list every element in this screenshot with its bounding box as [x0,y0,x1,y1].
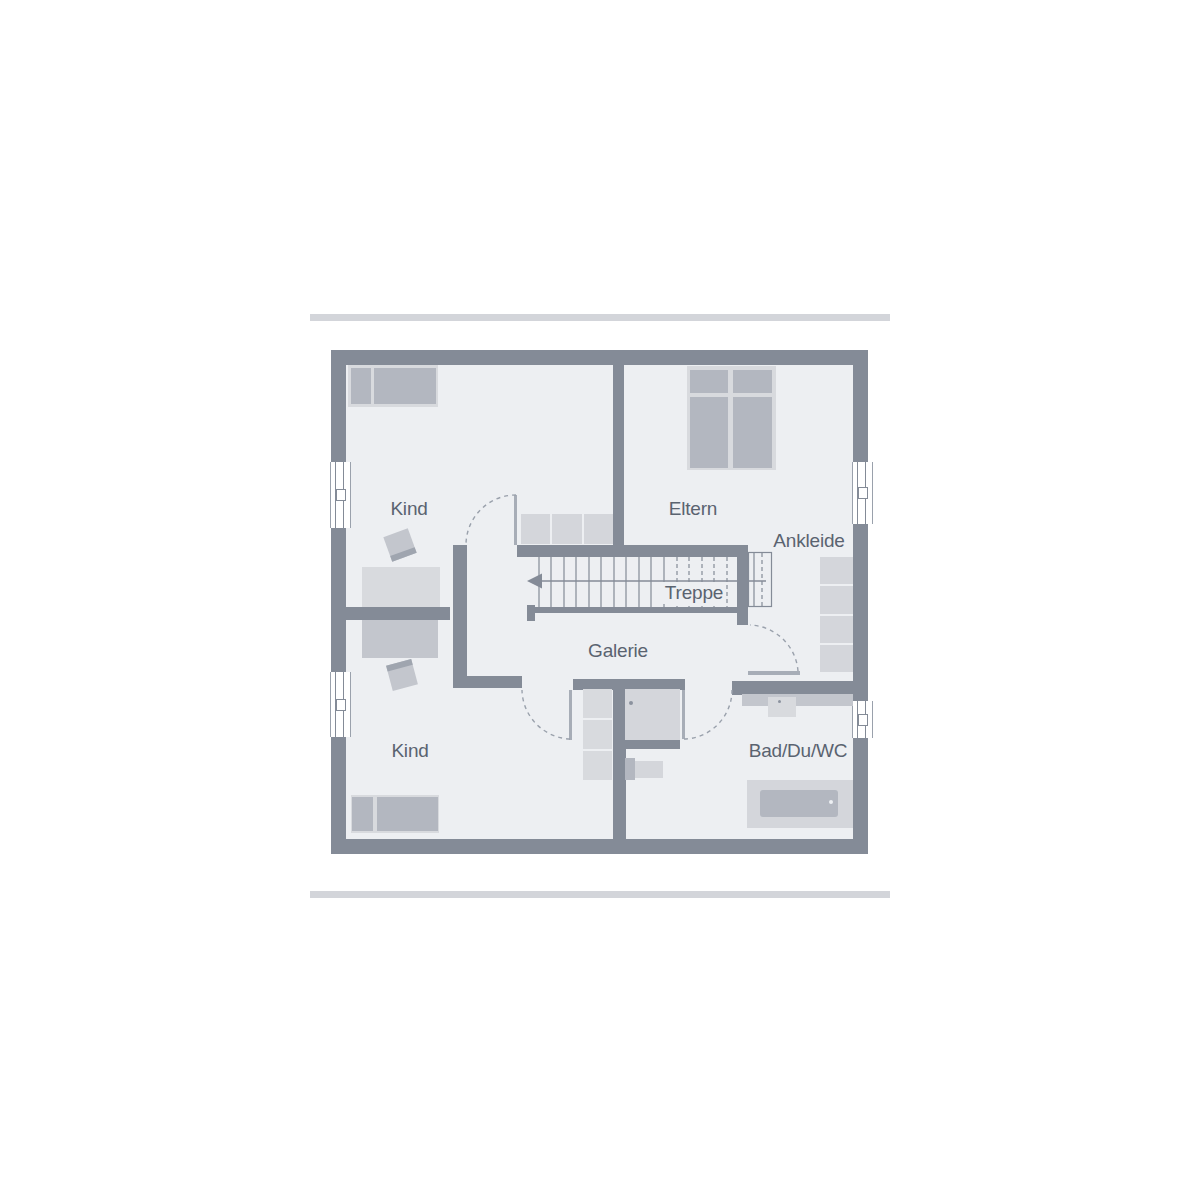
desk [362,620,438,658]
interior-wall-galerie-south-west [453,676,522,688]
bed-pillow [351,368,371,404]
exterior-wall-right [853,350,868,854]
door-leaf [569,690,572,740]
wardrobe-section [820,616,853,643]
cabinet-section [583,689,612,718]
window-handle [858,487,868,499]
sideboard-section [521,514,550,544]
room-label-galerie: Galerie [588,640,648,662]
floor-plan-canvas: Kind Eltern Ankleide Treppe Galerie Kind… [0,0,1200,1200]
window-right-lower [852,701,873,738]
room-label-bad: Bad/Du/WC [749,740,848,762]
door-leaf [514,495,517,545]
interior-wall-shower-south [626,740,680,749]
wardrobe-section [820,645,853,672]
faucet-dot [778,700,781,703]
bathtub [760,790,838,817]
sideboard-section [552,514,581,544]
interior-wall-bath-north [732,681,853,695]
room-label-treppe: Treppe [662,582,726,604]
bed-mattress [733,397,772,468]
interior-wall-kind-divider [331,607,450,620]
bed-mattress [377,797,438,831]
interior-wall-kind-eltern-divider [613,365,624,546]
exterior-wall-bottom [331,839,868,854]
door-leaf [682,690,685,739]
cabinet-section [583,751,612,780]
interior-wall-stair-end [737,545,748,625]
top-rule-line [310,314,890,321]
window-left-lower [330,672,351,737]
stair-railing [527,607,737,613]
wardrobe [820,557,853,672]
sideboard-section [584,514,613,544]
interior-wall-galerie-west [453,545,467,688]
bed-mattress [374,368,436,404]
shower [625,689,680,740]
window-handle [858,714,868,726]
cabinet [583,689,612,780]
bed-pillow [690,370,728,393]
cabinet-section [583,720,612,749]
exterior-wall-left [331,350,346,854]
room-label-kind-lower: Kind [391,740,428,762]
room-label-eltern: Eltern [669,498,717,520]
faucet-dot [829,800,833,804]
bed-mattress [690,397,728,468]
room-label-ankleide: Ankleide [773,530,844,552]
sink [768,697,796,717]
interior-wall-stair-north [517,545,748,557]
wardrobe-section [820,557,853,584]
toilet-bowl [635,761,663,778]
bottom-rule-line [310,891,890,898]
shower-head-dot [629,701,633,705]
window-handle [336,699,346,711]
room-label-kind-upper: Kind [390,498,427,520]
toilet-cistern [625,758,635,780]
bed-pillow [352,797,373,831]
exterior-wall-top [331,350,868,365]
window-handle [336,489,346,501]
window-right-upper [852,462,873,524]
window-left-upper [330,462,351,528]
sideboard [521,514,613,544]
bed-pillow [733,370,772,393]
desk [362,567,440,607]
wardrobe-section [820,586,853,613]
door-leaf [748,671,800,675]
vanity-counter [742,694,853,706]
stair-railing-corner [527,605,535,621]
